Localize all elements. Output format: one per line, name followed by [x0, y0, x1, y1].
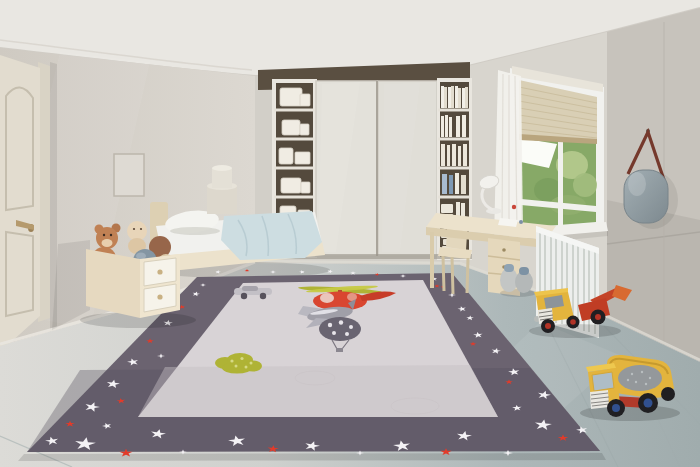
toybox-left-face	[86, 249, 140, 318]
wardrobe-doors[interactable]	[316, 81, 437, 256]
picture-frame	[114, 154, 144, 196]
rug-field-shade	[138, 365, 498, 417]
door[interactable]	[0, 55, 57, 352]
dump-window	[592, 372, 614, 391]
desk-leg	[430, 232, 434, 288]
pillow-shadow	[170, 227, 220, 235]
mirror-highlight	[628, 172, 646, 196]
dump-load	[618, 365, 662, 391]
bedroom-scene	[0, 0, 700, 467]
window-mullion	[558, 141, 563, 227]
blanket	[221, 211, 322, 260]
window	[494, 66, 608, 246]
rug-outer-shadow	[18, 453, 606, 461]
